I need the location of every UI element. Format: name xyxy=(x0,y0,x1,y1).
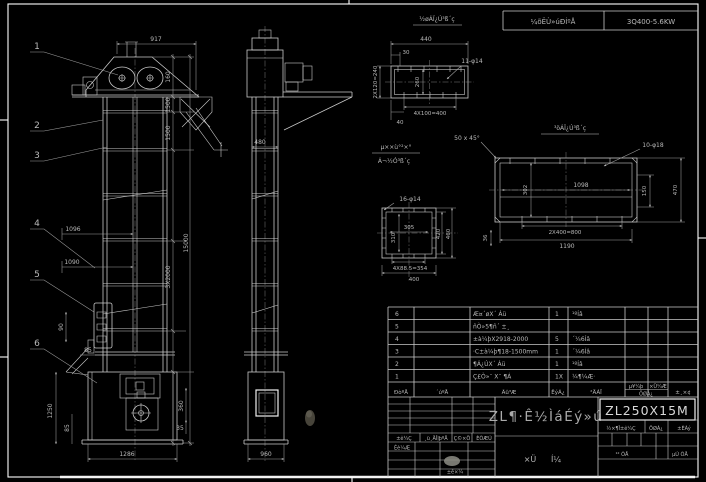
detail1-dim-260: 260 xyxy=(415,76,421,87)
detail1-dim-30: 30 xyxy=(403,50,410,56)
dim-1090: 1090 xyxy=(64,259,79,266)
detail3-holes-callout: 16-φ14 xyxy=(399,196,421,203)
dim-917: 917 xyxy=(150,36,162,43)
dim-35: 35 xyxy=(176,425,184,432)
detail1-dim-2x120: 2X120=240 xyxy=(373,65,379,98)
dim-3x2000: 3X2000 xyxy=(165,265,172,288)
bom-row-name: Ç£Ò»¨ X¨ ¶Á xyxy=(473,374,512,381)
callouts: 1 2 3 4 5 6 xyxy=(30,42,118,383)
title-block: ±ê¼Ç ¸ü¸ÄÎļþºÅ Ç©×Ö ÈÕÆÚ Éè¼Æ ±ê×¼ ZL¶·Ê… xyxy=(388,397,698,477)
detail2-dim-302: 302 xyxy=(523,185,529,196)
detail2-dim-1190: 1190 xyxy=(559,243,574,250)
detail1-holes-callout: 11-φ14 xyxy=(461,58,483,65)
drawing-sheet: ¼õËÙ»úÐÍºÅ 3Q400-5.6KW xyxy=(0,0,706,482)
bom-row: 1 Ç£Ò»¨ X¨ ¶Á 1X ¼¶¼Æ· xyxy=(395,374,595,381)
bom-header-name: Ãû³Æ xyxy=(502,389,517,396)
signature-stamp xyxy=(444,456,460,466)
bom-header-weight: ÖØÁ¿ xyxy=(639,391,653,398)
detail2-dim-2x400: 2X400=800 xyxy=(549,230,582,236)
doc-type-char-2: Í¼ xyxy=(551,453,561,464)
detail1-dim-40: 40 xyxy=(397,120,404,126)
bom-row: 4 ±à¼þX2918-2000 5 ´¼6Íâ xyxy=(395,336,590,343)
dim-90: 90 xyxy=(58,323,65,331)
bom-row-no: 3 xyxy=(395,349,399,356)
bom-header-qty: ÊýÁ¿ xyxy=(551,388,564,396)
model-number: ZL250X15M xyxy=(605,403,689,418)
bom-row-no: 5 xyxy=(395,324,399,331)
bom-row-no: 2 xyxy=(395,361,399,368)
detail3-dim-310: 310 xyxy=(391,232,397,243)
scale-label: ±ÈÀý xyxy=(677,424,690,432)
header-bar-cell-2: 3Q400-5.6KW xyxy=(627,18,675,26)
smudge-mark xyxy=(305,410,315,426)
dim-85-b: 85 xyxy=(64,424,71,432)
standard-label: ±ê×¼ xyxy=(447,469,463,476)
detail3-dim-4x885: 4X88.5=354 xyxy=(393,266,428,272)
bom-row-name: Æ¤´øX´ Áü xyxy=(473,311,506,318)
detail3-label-1: µ××ù°²×° xyxy=(380,144,411,151)
detail-discharge-plate: ³öÁÏ¿Ú³ß´ç 1098 302 150 470 2X400=800 11… xyxy=(454,125,685,250)
bom-row-no: 1 xyxy=(395,374,399,381)
detail2-label: ³öÁÏ¿Ú³ß´ç xyxy=(554,125,586,132)
bom-row-qty: 1 xyxy=(555,311,559,318)
bom-row-qty: 1 xyxy=(555,349,559,356)
callout-4: 4 xyxy=(34,219,40,229)
rev-header-file: ¸ü¸ÄÎļþºÅ xyxy=(424,435,448,442)
bom-row-material: ¼¶¼Æ· xyxy=(572,374,595,381)
stage-mark-label: ½×¶Î±ê¼Ç xyxy=(606,425,636,432)
drawing-title: ZL¶·Ê½ÌáÉý»ú xyxy=(489,407,604,425)
bom-row-name: ·C±à¼þ¶18-1500mm xyxy=(473,349,538,356)
callout-1: 1 xyxy=(34,42,40,52)
dim-1500-b: 1500 xyxy=(165,125,172,140)
rev-header-mark: ±ê¼Ç xyxy=(396,435,412,442)
bom-row: 2 ¶Á¿ÚX´ Áü 1 ¹ºÍâ xyxy=(395,361,583,368)
bom-row-no: 4 xyxy=(395,336,399,343)
detail1-dim-440: 440 xyxy=(420,36,432,43)
detail3-dim-305: 305 xyxy=(404,225,415,231)
dim-1096: 1096 xyxy=(65,226,80,233)
rev-header-sign: Ç©×Ö xyxy=(454,435,471,442)
designer-label: Éè¼Æ xyxy=(394,444,410,452)
doc-type-char-1: ×Ü xyxy=(524,454,537,464)
callout-6: 6 xyxy=(34,339,40,349)
detail2-dim-150: 150 xyxy=(642,185,648,196)
bom-row: 5 ñÒ»5¶ñ´ ±¸ xyxy=(395,324,510,331)
detail-top-flange: ½øÁÏ¿Ú³ß´ç 260 440 30 2X120=240 4X100=40… xyxy=(373,16,483,126)
detail1-label: ½øÁÏ¿Ú³ß´ç xyxy=(419,16,454,23)
front-view-linework xyxy=(66,42,228,462)
bom-row-qty: 5 xyxy=(555,336,559,343)
bom-table: ÐòºÅ ´úºÅ Ãû³Æ ÊýÁ¿ ²ÄÁÏ µ¥¼þ ×Ü¼Æ ÖØÁ¿ … xyxy=(388,307,698,398)
detail3-dim-420: 420 xyxy=(436,228,442,239)
detail3-dim-400: 400 xyxy=(409,277,420,283)
bom-row-material: ¹ºÍâ xyxy=(572,361,583,368)
detail2-holes-callout: 10-φ18 xyxy=(642,142,664,149)
callout-5: 5 xyxy=(34,270,40,280)
detail3-dim-460: 460 xyxy=(446,228,452,239)
callout-3: 3 xyxy=(34,151,40,161)
bom-header-code: ´úºÅ xyxy=(436,389,449,396)
bom-header-seq: ÐòºÅ xyxy=(394,389,408,396)
bom-row-qty: 1 xyxy=(555,361,559,368)
dim-960: 960 xyxy=(260,451,272,458)
dim-1500-a: 1500 xyxy=(165,97,172,112)
bom-header-total: ×Ü¼Æ xyxy=(649,383,667,390)
side-view: 480 960 xyxy=(244,26,352,462)
sheet-number-label: µÚ ÕÅ xyxy=(672,451,688,458)
rev-header-date: ÈÕÆÚ xyxy=(476,434,492,442)
detail2-chamfer-note: 50 x 45° xyxy=(454,135,480,142)
header-bar: ¼õËÙ»úÐÍºÅ 3Q400-5.6KW xyxy=(503,11,698,30)
detail2-dim-1098: 1098 xyxy=(573,182,588,189)
bom-row-qty: 1X xyxy=(555,374,563,381)
bom-row: 3 ·C±à¼þ¶18-1500mm 1 ´¼6Íâ xyxy=(395,349,590,356)
detail-base-flange: µ××ù°²×° Á¬½Ó³ß´ç 16-φ14 305 310 420 460… xyxy=(372,144,458,283)
bom-row-no: 6 xyxy=(395,311,399,318)
sheet-total-label: ¹² ÕÅ xyxy=(616,451,630,458)
dim-360: 360 xyxy=(178,400,185,412)
bom-row-name: ±à¼þX2918-2000 xyxy=(473,336,528,343)
bom-row-material: ´¼6Íâ xyxy=(572,336,590,343)
detail1-dim-4x100: 4X100=400 xyxy=(414,111,447,117)
callout-2: 2 xyxy=(34,121,40,131)
weight-label: ÖØÁ¿ xyxy=(649,425,663,432)
dim-480: 480 xyxy=(254,139,266,146)
detail3-label-2: Á¬½Ó³ß´ç xyxy=(378,158,410,165)
dim-1286: 1286 xyxy=(119,451,134,458)
header-bar-cell-1: ¼õËÙ»úÐÍºÅ xyxy=(531,17,576,26)
front-view: 917 160 1500 1500 3X2000 15000 1096 1090… xyxy=(47,36,228,462)
bom-row-material: ´¼6Íâ xyxy=(572,349,590,356)
detail2-dim-470: 470 xyxy=(673,184,679,195)
bom-header-remark: ±¸×¢ xyxy=(675,390,690,396)
dim-85-a: 85 xyxy=(84,347,92,354)
bom-row: 6 Æ¤´øX´ Áü 1 ¹ºÍâ xyxy=(395,311,583,318)
bom-row-name: ¶Á¿ÚX´ Áü xyxy=(473,361,506,368)
dim-15000: 15000 xyxy=(183,233,190,252)
dim-160: 160 xyxy=(165,71,172,83)
detail2-dim-36: 36 xyxy=(483,234,489,241)
cad-canvas: ¼õËÙ»úÐÍºÅ 3Q400-5.6KW xyxy=(0,0,706,482)
bom-header-unit: µ¥¼þ xyxy=(629,384,643,390)
bom-row-material: ¹ºÍâ xyxy=(572,311,583,318)
bom-header-material: ²ÄÁÏ xyxy=(590,389,602,396)
dim-1250: 1250 xyxy=(47,403,54,418)
bom-row-name: ñÒ»5¶ñ´ ±¸ xyxy=(473,324,510,331)
side-view-linework xyxy=(244,26,352,462)
